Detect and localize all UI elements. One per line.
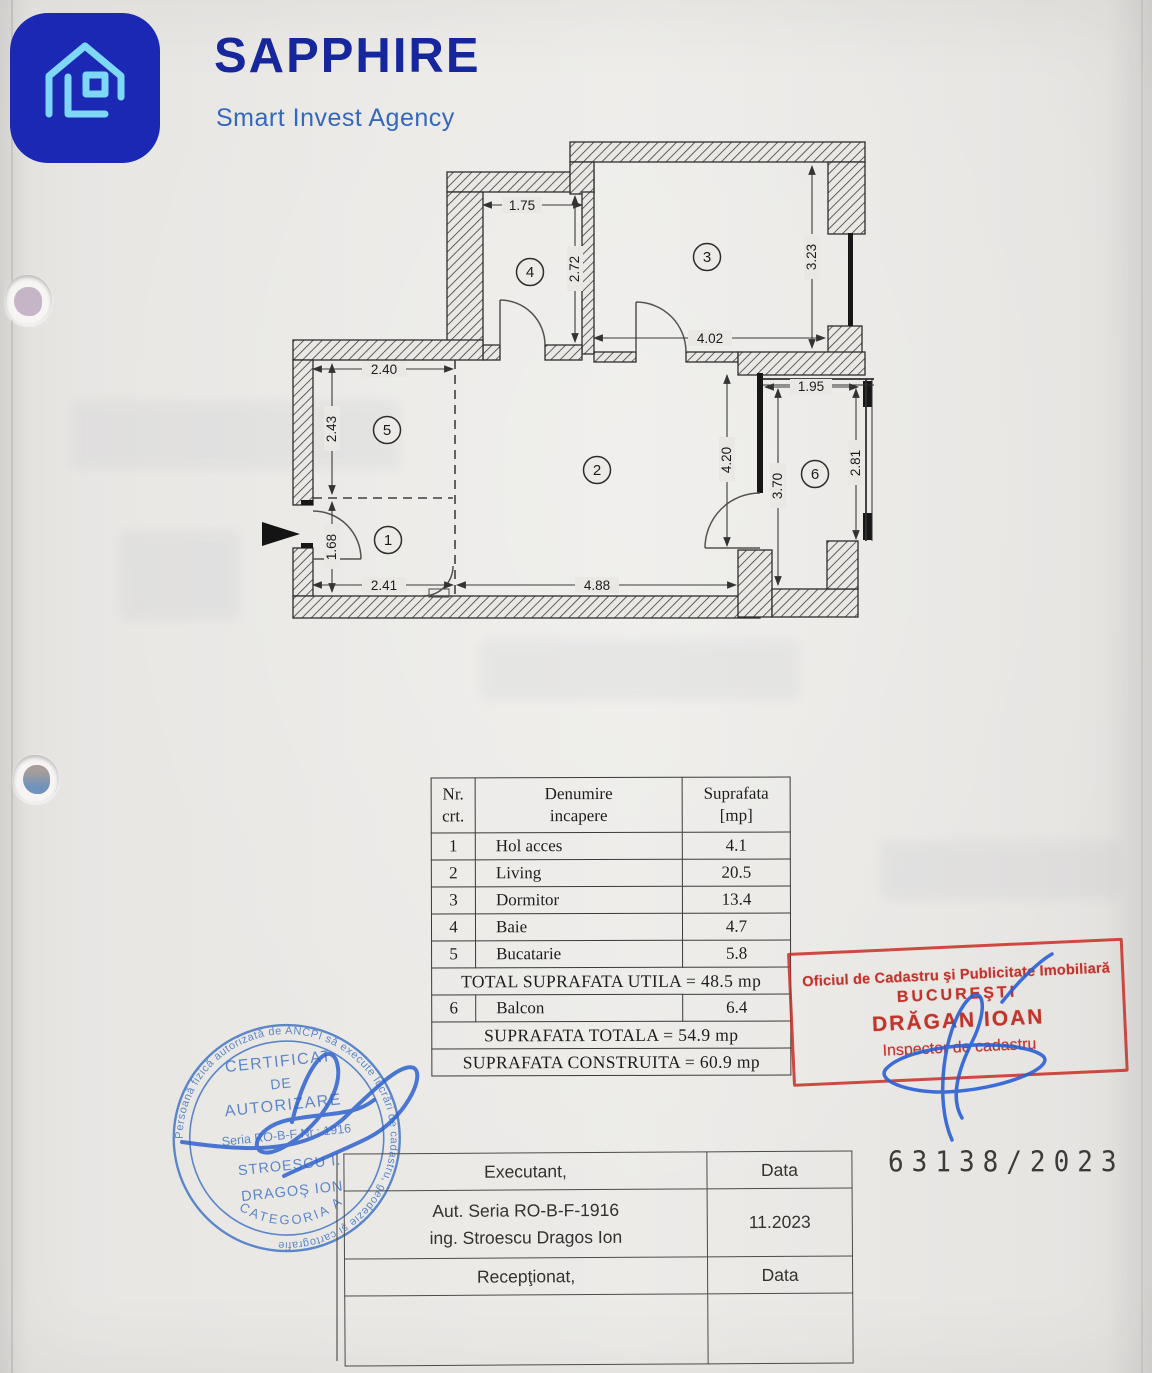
total-row: SUPRAFATA TOTALA = 54.9 mp <box>432 1021 791 1049</box>
ocpi-red-stamp: Oficiul de Cadastru şi Publicitate Imobi… <box>787 938 1129 1087</box>
row-area: 4.7 <box>682 913 790 940</box>
empty-cell <box>708 1293 853 1364</box>
round-stamp-line3: AUTORIZARE <box>224 1091 343 1120</box>
room-label-baie: 4 <box>526 264 534 281</box>
round-stamp-line2: DE <box>269 1074 292 1092</box>
registration-number: 63138/2023 <box>888 1147 1125 1179</box>
table-row: 3 Dormitor 13.4 <box>431 886 790 914</box>
row-name: Bucatarie <box>476 940 683 968</box>
scan-artifact-line <box>336 1153 338 1361</box>
row-nr: 6 <box>432 995 476 1022</box>
receptionat-label: Recepţionat, <box>344 1257 707 1296</box>
dim-dormitor-width: 4.02 <box>697 331 723 346</box>
dim-living-height: 4.20 <box>719 447 734 473</box>
row-nr: 1 <box>431 833 475 860</box>
dim-balcon-left-height: 3.70 <box>770 473 785 499</box>
header-nr: Nr.crt. <box>431 778 475 833</box>
stamp-inspector-title: Inspector de cadastru <box>882 1036 1037 1061</box>
dim-baie-width: 1.75 <box>509 198 535 213</box>
scanned-cadastral-document: { "logo": { "brand": "SAPPHIRE", "taglin… <box>0 0 1152 1373</box>
dim-bucatarie-height: 2.43 <box>324 416 339 442</box>
room-areas-table: Nr.crt. Denumireincapere Suprafata[mp] 1… <box>431 777 792 1077</box>
row-nr: 3 <box>431 887 475 914</box>
row-area: 4.1 <box>682 832 790 859</box>
total-utila-value: TOTAL SUPRAFATA UTILA = 48.5 mp <box>432 967 791 995</box>
suprafata-construita-value: SUPRAFATA CONSTRUITA = 60.9 mp <box>432 1048 791 1076</box>
row-name: Dormitor <box>475 886 682 914</box>
executant-label: Executant, <box>344 1152 707 1191</box>
row-name: Baie <box>475 913 682 941</box>
executant-row: Executant, Data <box>344 1151 852 1191</box>
room-label-balcon: 6 <box>811 466 819 483</box>
data-label: Data <box>707 1256 852 1294</box>
executant-details-row: Aut. Seria RO-B-F-1916 ing. Stroescu Dra… <box>344 1188 852 1259</box>
row-area: 5.8 <box>683 940 791 967</box>
date-value: 11.2023 <box>707 1188 852 1257</box>
table-row: 1 Hol acces 4.1 <box>431 832 790 860</box>
table-row: 5 Bucatarie 5.8 <box>432 940 791 968</box>
dim-bucatarie-width: 2.40 <box>371 362 397 377</box>
round-stamp-line4: Seria RO-B-F Nr.: 1916 <box>221 1121 352 1149</box>
construita-row: SUPRAFATA CONSTRUITA = 60.9 mp <box>432 1048 791 1076</box>
row-name: Hol acces <box>475 832 682 860</box>
table-row: 4 Baie 4.7 <box>431 913 790 941</box>
dim-hol-height: 1.68 <box>324 534 339 560</box>
receptionat-row: Recepţionat, Data <box>344 1256 852 1296</box>
room-label-living: 2 <box>593 462 601 479</box>
table-row-balcon: 6 Balcon 6.4 <box>432 994 791 1022</box>
executant-details: Aut. Seria RO-B-F-1916 ing. Stroescu Dra… <box>344 1189 707 1259</box>
header-denumire: Denumireincapere <box>475 777 682 833</box>
row-name: Living <box>475 859 682 887</box>
row-name: Balcon <box>476 994 683 1022</box>
row-area: 20.5 <box>682 859 790 886</box>
stamp-city: BUCUREŞTI <box>897 984 1018 1007</box>
room-label-dormitor: 3 <box>703 249 711 266</box>
row-nr: 5 <box>432 941 476 968</box>
empty-row <box>345 1293 853 1366</box>
room-label-hol: 1 <box>384 532 392 549</box>
dim-hol-width: 2.41 <box>371 578 397 593</box>
data-label: Data <box>707 1151 852 1189</box>
table-header-row: Nr.crt. Denumireincapere Suprafata[mp] <box>431 777 790 833</box>
row-nr: 2 <box>431 860 475 887</box>
dim-balcon-right-height: 2.81 <box>848 450 863 476</box>
dim-living-width: 4.88 <box>584 578 610 593</box>
signature-table: Executant, Data Aut. Seria RO-B-F-1916 i… <box>343 1150 853 1366</box>
dim-baie-height: 2.72 <box>567 256 582 282</box>
total-utila-row: TOTAL SUPRAFATA UTILA = 48.5 mp <box>432 967 791 995</box>
row-area: 13.4 <box>682 886 790 913</box>
suprafata-totala-value: SUPRAFATA TOTALA = 54.9 mp <box>432 1021 791 1049</box>
dim-dormitor-height: 3.23 <box>804 244 819 270</box>
dim-balcon-width: 1.95 <box>798 379 824 394</box>
entrance-arrow-icon <box>262 522 300 546</box>
row-nr: 4 <box>431 914 475 941</box>
table-row: 2 Living 20.5 <box>431 859 790 887</box>
room-label-bucatarie: 5 <box>383 422 391 439</box>
stamp-inspector-name: DRĂGAN IOAN <box>872 1005 1045 1037</box>
empty-cell <box>345 1294 708 1366</box>
header-suprafata: Suprafata[mp] <box>682 777 790 832</box>
round-stamp-line5: STROESCU I. <box>237 1153 342 1180</box>
row-area: 6.4 <box>683 994 791 1021</box>
